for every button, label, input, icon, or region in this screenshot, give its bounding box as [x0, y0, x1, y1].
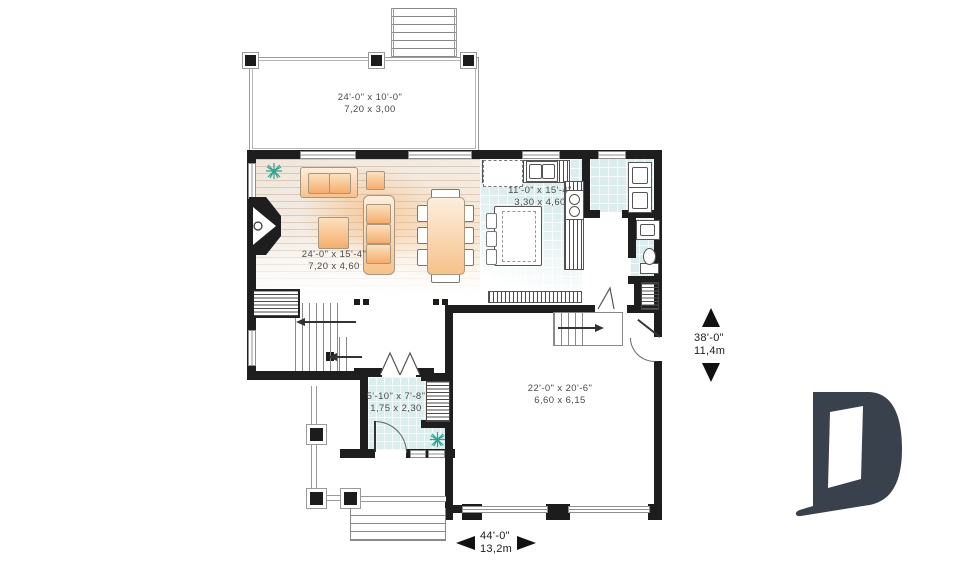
front-door-leaf [374, 421, 376, 452]
washer [628, 162, 652, 188]
drummond-d-logo [786, 386, 906, 522]
width-dimension: 44'-0" 13,2m [456, 530, 536, 556]
foyer-dim-imperial: 5'-10" x 7'-8" [348, 391, 444, 403]
island-stool [486, 231, 497, 247]
dryer [628, 187, 652, 213]
corner-pantry [483, 160, 523, 187]
area-rug [318, 217, 349, 249]
garage-dim-imperial: 22'-0" x 20'-6" [495, 383, 625, 395]
bifold-closet-doors [380, 351, 420, 376]
wall-segment [354, 368, 382, 377]
garage-side-door-swing [630, 338, 655, 362]
fireplace [249, 197, 287, 255]
living-dim-imperial: 24'-0" x 15'-4" [264, 249, 404, 261]
window [248, 163, 256, 199]
structural-post [442, 299, 448, 305]
garage-label: 22'-0" x 20'-6" 6,60 x 6,15 [495, 383, 625, 408]
stair-arrow-icon [328, 353, 337, 361]
plant-icon [428, 430, 447, 449]
porch-steps [350, 508, 446, 541]
window [248, 330, 256, 366]
window [598, 151, 626, 159]
staircase [339, 337, 353, 371]
vanity-sink [636, 220, 660, 240]
stair-arrow-icon [595, 324, 604, 332]
stair-direction-line [558, 327, 596, 329]
deck-post [243, 53, 258, 68]
depth-imperial: 38'-0" [694, 332, 744, 345]
deck-dim-imperial: 24'-0" x 10'-0" [300, 92, 440, 104]
wall-segment [590, 210, 600, 218]
porch-column [306, 488, 327, 509]
arrow-right-icon [517, 536, 536, 550]
wall-segment [628, 218, 636, 258]
porch-railing [358, 496, 446, 502]
dining-table [427, 197, 465, 275]
sofa [300, 167, 358, 198]
arrow-down-icon [702, 363, 720, 382]
porch-column [306, 424, 327, 445]
garage-dim-metric: 6,60 x 6,15 [495, 395, 625, 407]
wall-segment [634, 284, 641, 310]
window [300, 151, 356, 159]
structural-post [433, 299, 439, 305]
structural-post [363, 299, 369, 305]
deck-label: 24'-0" x 10'-0" 7,20 x 3,00 [300, 92, 440, 117]
island-stool [486, 213, 497, 229]
stair-arrow-icon [296, 318, 305, 326]
deck-stairs [391, 8, 457, 57]
toilet-bowl [643, 248, 656, 265]
floor-plan: 24'-0" x 10'-0" 7,20 x 3,00 [0, 0, 960, 569]
garage-stairs [553, 312, 623, 346]
deck-dim-metric: 7,20 x 3,00 [300, 104, 440, 116]
garage-pilaster [648, 504, 662, 520]
foyer-label: 5'-10" x 7'-8" 1,75 x 2,30 [348, 391, 444, 416]
bay-window-seat [252, 289, 300, 318]
kitchen-dim-metric: 3,30 x 4,60 [480, 197, 600, 209]
wall-segment [340, 449, 375, 458]
door-fold [596, 286, 628, 310]
ottoman [366, 171, 385, 190]
wall-segment [445, 505, 462, 513]
garage-pilaster [546, 504, 570, 520]
kitchen-label: 11'-0" x 15'-4" 3,30 x 4,60 [480, 185, 600, 210]
living-room-label: 24'-0" x 15'-4" 7,20 x 4,60 [264, 249, 404, 274]
foyer-dim-metric: 1,75 x 2,30 [348, 403, 444, 415]
garage-door-sill [568, 506, 650, 513]
patio-door [408, 151, 472, 159]
kitchen-dim-imperial: 11'-0" x 15'-4" [480, 185, 600, 197]
structural-post [354, 299, 360, 305]
living-dim-metric: 7,20 x 4,60 [264, 261, 404, 273]
island-stool [486, 249, 497, 265]
depth-dimension: 38'-0" 11,4m [694, 308, 744, 382]
arrow-left-icon [456, 536, 475, 550]
plant-icon [264, 161, 284, 181]
window [522, 151, 560, 159]
window [428, 450, 445, 458]
garage-door-sill [462, 506, 548, 513]
width-metric: 13,2m [480, 543, 512, 556]
kitchen-island [494, 206, 542, 266]
stair-direction-line [302, 321, 356, 323]
arrow-up-icon [702, 308, 720, 327]
kitchen-sink [526, 161, 558, 182]
wall-segment [247, 371, 365, 380]
basement-stairs [641, 282, 659, 310]
porch-column [340, 488, 361, 509]
stair-direction-line [334, 356, 362, 358]
half-wall [488, 291, 582, 303]
deck-post [461, 53, 476, 68]
window [410, 450, 426, 458]
depth-metric: 11,4m [694, 345, 744, 358]
wall-segment [654, 361, 662, 520]
deck-post [369, 53, 384, 68]
width-imperial: 44'-0" [480, 530, 512, 543]
